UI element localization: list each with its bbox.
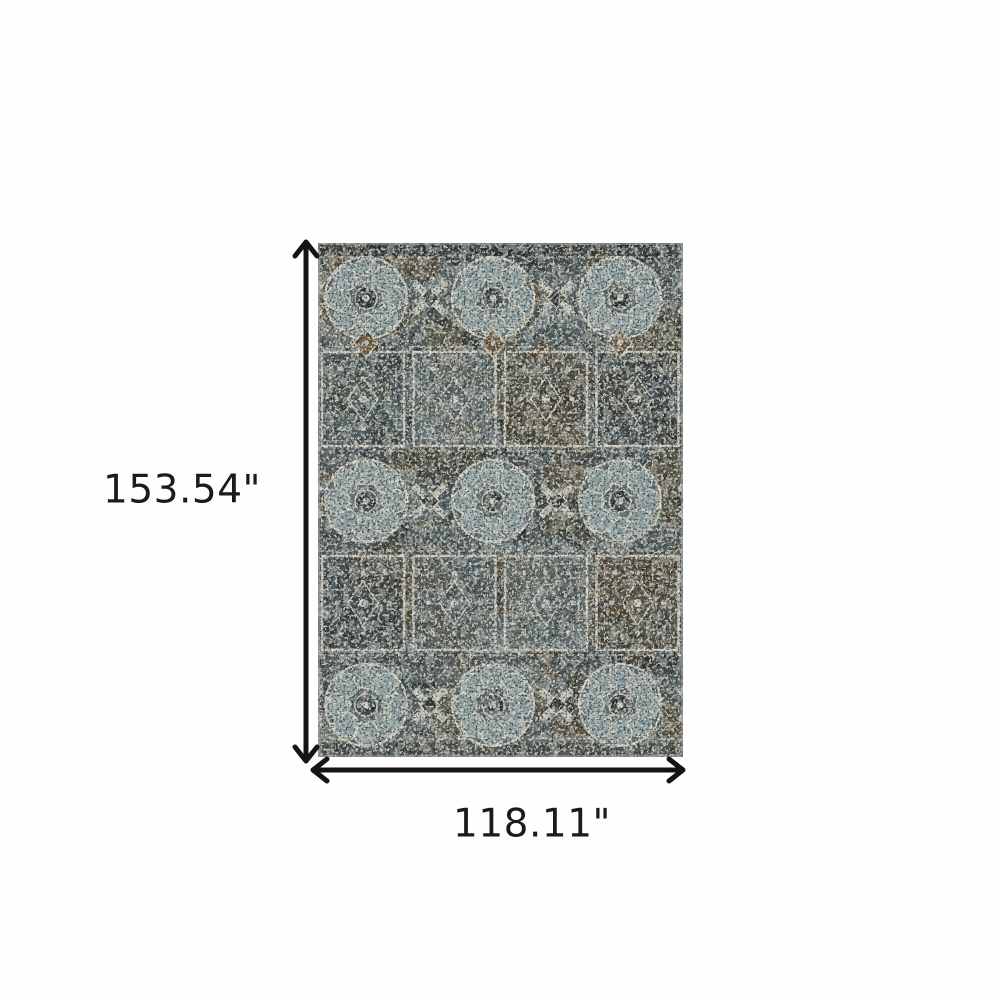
width-dimension-label: 118.11" [453, 802, 611, 847]
height-dimension-arrow [295, 242, 317, 761]
product-dimension-diagram: 153.54" 118.11" [0, 0, 1000, 1000]
height-dimension-label: 153.54" [103, 468, 261, 513]
width-dimension-arrow [313, 759, 683, 781]
rug-photo [318, 243, 683, 757]
